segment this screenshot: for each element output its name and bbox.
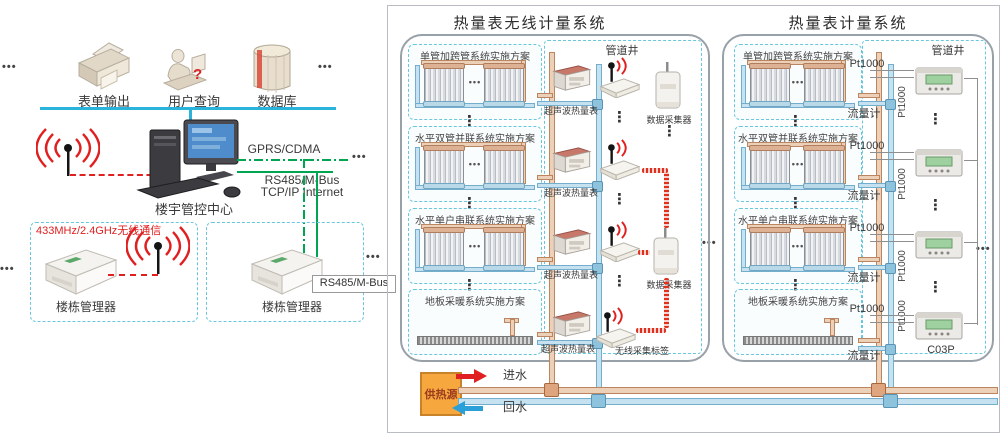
return-arrow — [452, 401, 483, 415]
pt1000-label: Pt1000 — [842, 303, 892, 316]
radiator — [484, 65, 524, 105]
radiator — [804, 65, 844, 105]
pt1000-label: Pt1000 — [842, 222, 892, 235]
vertical-ellipsis: ⋮ — [612, 112, 627, 125]
radiator — [424, 229, 464, 269]
device-model-label: C03P — [916, 344, 966, 357]
wireless-collection-tag-icon — [594, 306, 638, 348]
branch-pipe-hot — [537, 175, 553, 180]
wireless-signal-path — [664, 278, 669, 328]
pt1000-label: Pt1000 — [897, 296, 909, 336]
ellipsis: ••• — [352, 152, 367, 163]
pt1000-label: Pt1000 — [897, 82, 909, 122]
vertical-ellipsis: ⋮ — [612, 276, 627, 289]
tcpip-label: TCP/IP Internet — [252, 186, 352, 200]
wired-system-title: 热量表计量系统 — [758, 12, 938, 33]
vertical-ellipsis: ⋮ — [612, 194, 627, 207]
gprs-dashdot-line — [237, 159, 349, 161]
mbus-wire — [964, 323, 977, 324]
mbus-wire — [964, 78, 977, 79]
radiator — [424, 65, 464, 105]
main-pipe-supply — [458, 387, 998, 394]
ultrasonic-heat-meter-icon — [550, 146, 592, 174]
scheme-title: 地板采暖系统实施方案 — [409, 293, 541, 308]
ultrasonic-meter-label: 超声波热量表 — [536, 106, 606, 116]
radiator — [484, 229, 524, 269]
pt1000-label: Pt1000 — [897, 246, 909, 286]
pipe-cold — [415, 229, 420, 271]
scheme-floor-heating: 地板采暖系统实施方案 — [734, 289, 862, 355]
pipe-joint — [591, 394, 606, 408]
pipe-hot — [510, 319, 515, 336]
ultrasonic-meter-label: 超声波热量表 — [536, 270, 606, 280]
flow-meter-label: 流量计 — [840, 272, 888, 285]
ultrasonic-heat-meter-icon — [550, 228, 592, 256]
mbus-wire — [964, 242, 977, 243]
ellipsis: ••• — [366, 252, 381, 263]
scheme-two-pipe-parallel: 水平双管并联系统实施方案 ••• — [408, 126, 542, 202]
radiator — [484, 147, 524, 187]
branch-pipe-hot — [858, 175, 880, 180]
flow-meter-label: 流量计 — [840, 108, 888, 121]
ellipsis: ••• — [792, 241, 804, 251]
pipe-cold — [741, 65, 746, 107]
radiator — [804, 147, 844, 187]
wireless-transmitter-icon — [598, 138, 642, 180]
arrow-shaft — [456, 374, 474, 379]
wireless-signal-path — [636, 328, 666, 333]
ultrasonic-meter-label: 超声波热量表 — [534, 344, 602, 354]
user-query-icon — [158, 46, 212, 94]
wireless-dashed-link — [108, 274, 158, 276]
heat-calculator-icon — [914, 228, 964, 260]
ellipsis: ••• — [469, 241, 481, 251]
wireless-transmitter-icon — [598, 56, 642, 98]
cyan-bus-line — [40, 107, 336, 110]
vertical-ellipsis: ⋮ — [662, 126, 677, 139]
branch-pipe-hot — [537, 93, 553, 98]
scheme-single-household-series: 水平单户串联系统实施方案 ••• — [408, 208, 542, 284]
sensor-wire — [870, 77, 914, 78]
gprs-cdma-label: GPRS/CDMA — [242, 143, 326, 157]
main-pipe-return — [458, 398, 998, 405]
heat-calculator-icon — [914, 64, 964, 96]
pt1000-label: Pt1000 — [842, 140, 892, 153]
radio-antenna-icon — [36, 126, 100, 178]
data-collector-label: 数据采集器 — [636, 280, 702, 290]
pipe-joint — [544, 383, 559, 397]
radiator — [750, 229, 790, 269]
arrow-shaft — [465, 406, 483, 411]
pipe-joint — [883, 394, 898, 408]
wireless-system-title: 热量表无线计量系统 — [440, 12, 620, 33]
ellipsis: ••• — [318, 62, 333, 73]
inlet-arrow — [456, 369, 487, 383]
ellipsis: ••• — [469, 159, 481, 169]
branch-pipe-hot — [858, 257, 880, 262]
pt1000-label: Pt1000 — [842, 58, 892, 71]
branch-pipe-hot — [537, 257, 553, 262]
heat-metering-system-diagram: ••• 表单输出 ? 用户查询 数据库 ••• 楼宇管控中心 GPRS/CDMA… — [0, 0, 1000, 436]
printer-icon — [70, 40, 136, 94]
ellipsis: ••• — [469, 77, 481, 87]
arrow-head — [452, 401, 465, 415]
pt1000-label: Pt1000 — [897, 164, 909, 204]
scheme-floor-heating: 地板采暖系统实施方案 — [408, 289, 542, 355]
building-manager-label: 楼栋管理器 — [250, 301, 334, 315]
ellipsis: ••• — [792, 77, 804, 87]
radiator — [424, 147, 464, 187]
question-mark: ? — [193, 66, 202, 83]
pipe-hot — [830, 319, 835, 336]
branch-pipe-hot — [858, 338, 880, 343]
ellipsis: ••• — [0, 264, 15, 275]
sensor-wire — [870, 315, 914, 316]
pipe-cold — [741, 229, 746, 271]
return-label: 回水 — [498, 401, 532, 415]
flow-meter-label: 流量计 — [840, 350, 888, 363]
pipe-cold — [415, 65, 420, 107]
vertical-ellipsis: ⋮ — [928, 282, 943, 295]
mbus-wire — [964, 160, 977, 161]
heat-calculator-icon — [914, 146, 964, 178]
branch-pipe-hot — [858, 93, 880, 98]
pipe-cold — [741, 147, 746, 189]
control-center-label: 楼宇管控中心 — [142, 203, 246, 218]
inlet-label: 进水 — [498, 369, 532, 383]
floor-heating-coil — [417, 336, 533, 345]
building-manager-label: 楼栋管理器 — [44, 301, 128, 315]
radio-antenna-icon — [126, 224, 190, 276]
sensor-wire — [870, 241, 914, 242]
arrow-head — [474, 369, 487, 383]
flow-meter-label: 流量计 — [840, 190, 888, 203]
ultrasonic-heat-meter-icon — [550, 64, 592, 92]
control-center-pc-icon — [136, 118, 248, 204]
radiator — [804, 229, 844, 269]
wireless-tag-label: 无线采集标签 — [604, 346, 680, 356]
sensor-wire — [870, 322, 914, 323]
radiator — [750, 147, 790, 187]
wireless-transmitter-icon — [598, 220, 642, 262]
database-icon — [248, 42, 296, 94]
vertical-ellipsis: ⋮ — [928, 200, 943, 213]
data-collector-icon — [648, 228, 684, 278]
sensor-wire — [870, 234, 914, 235]
wireless-signal-path — [664, 172, 669, 228]
radiator — [750, 65, 790, 105]
pipe-cold — [415, 147, 420, 189]
sensor-wire — [870, 70, 914, 71]
scheme-single-pipe-bypass: 单管加跨管系统实施方案 ••• — [408, 44, 542, 120]
sensor-wire — [870, 159, 914, 160]
floor-heating-coil — [743, 336, 853, 345]
ellipsis: ••• — [2, 62, 17, 73]
ultrasonic-meter-label: 超声波热量表 — [536, 188, 606, 198]
mbus-line — [977, 78, 978, 325]
pipe-shaft-label: 管道井 — [918, 45, 978, 58]
heat-calculator-icon — [914, 309, 964, 341]
ellipsis: ••• — [792, 159, 804, 169]
sensor-wire — [870, 152, 914, 153]
building-manager-device-icon — [40, 246, 120, 298]
data-collector-icon — [650, 62, 686, 112]
ultrasonic-heat-meter-icon — [550, 310, 592, 338]
rs485-tag: RS485/M-Bus — [312, 275, 396, 293]
vertical-ellipsis: ⋮ — [928, 114, 943, 127]
